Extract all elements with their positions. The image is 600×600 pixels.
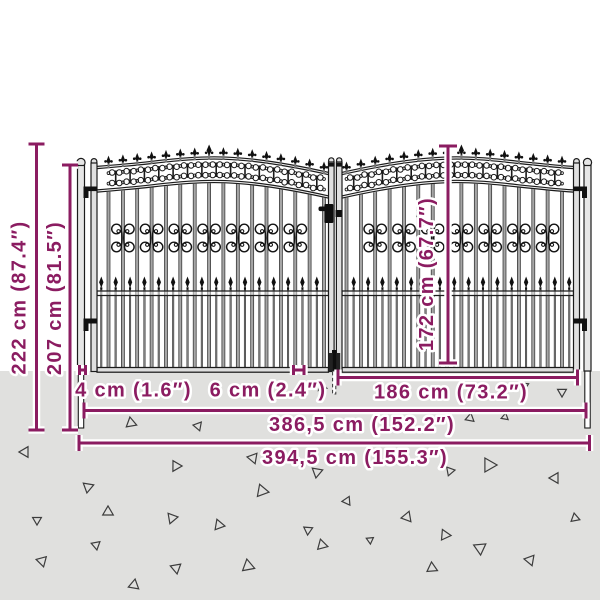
svg-text:207 cm (81.5″): 207 cm (81.5″) — [44, 221, 66, 375]
svg-text:4 cm (1.6″): 4 cm (1.6″) — [75, 380, 192, 402]
svg-text:222 cm (87.4″): 222 cm (87.4″) — [9, 220, 31, 374]
svg-text:394,5 cm (155.3″): 394,5 cm (155.3″) — [262, 447, 448, 469]
svg-text:186 cm (73.2″): 186 cm (73.2″) — [374, 382, 528, 404]
svg-text:386,5 cm (152.2″): 386,5 cm (152.2″) — [269, 414, 455, 436]
svg-text:6 cm (2.4″): 6 cm (2.4″) — [210, 380, 327, 402]
svg-text:172 cm (67.7″): 172 cm (67.7″) — [416, 197, 438, 351]
